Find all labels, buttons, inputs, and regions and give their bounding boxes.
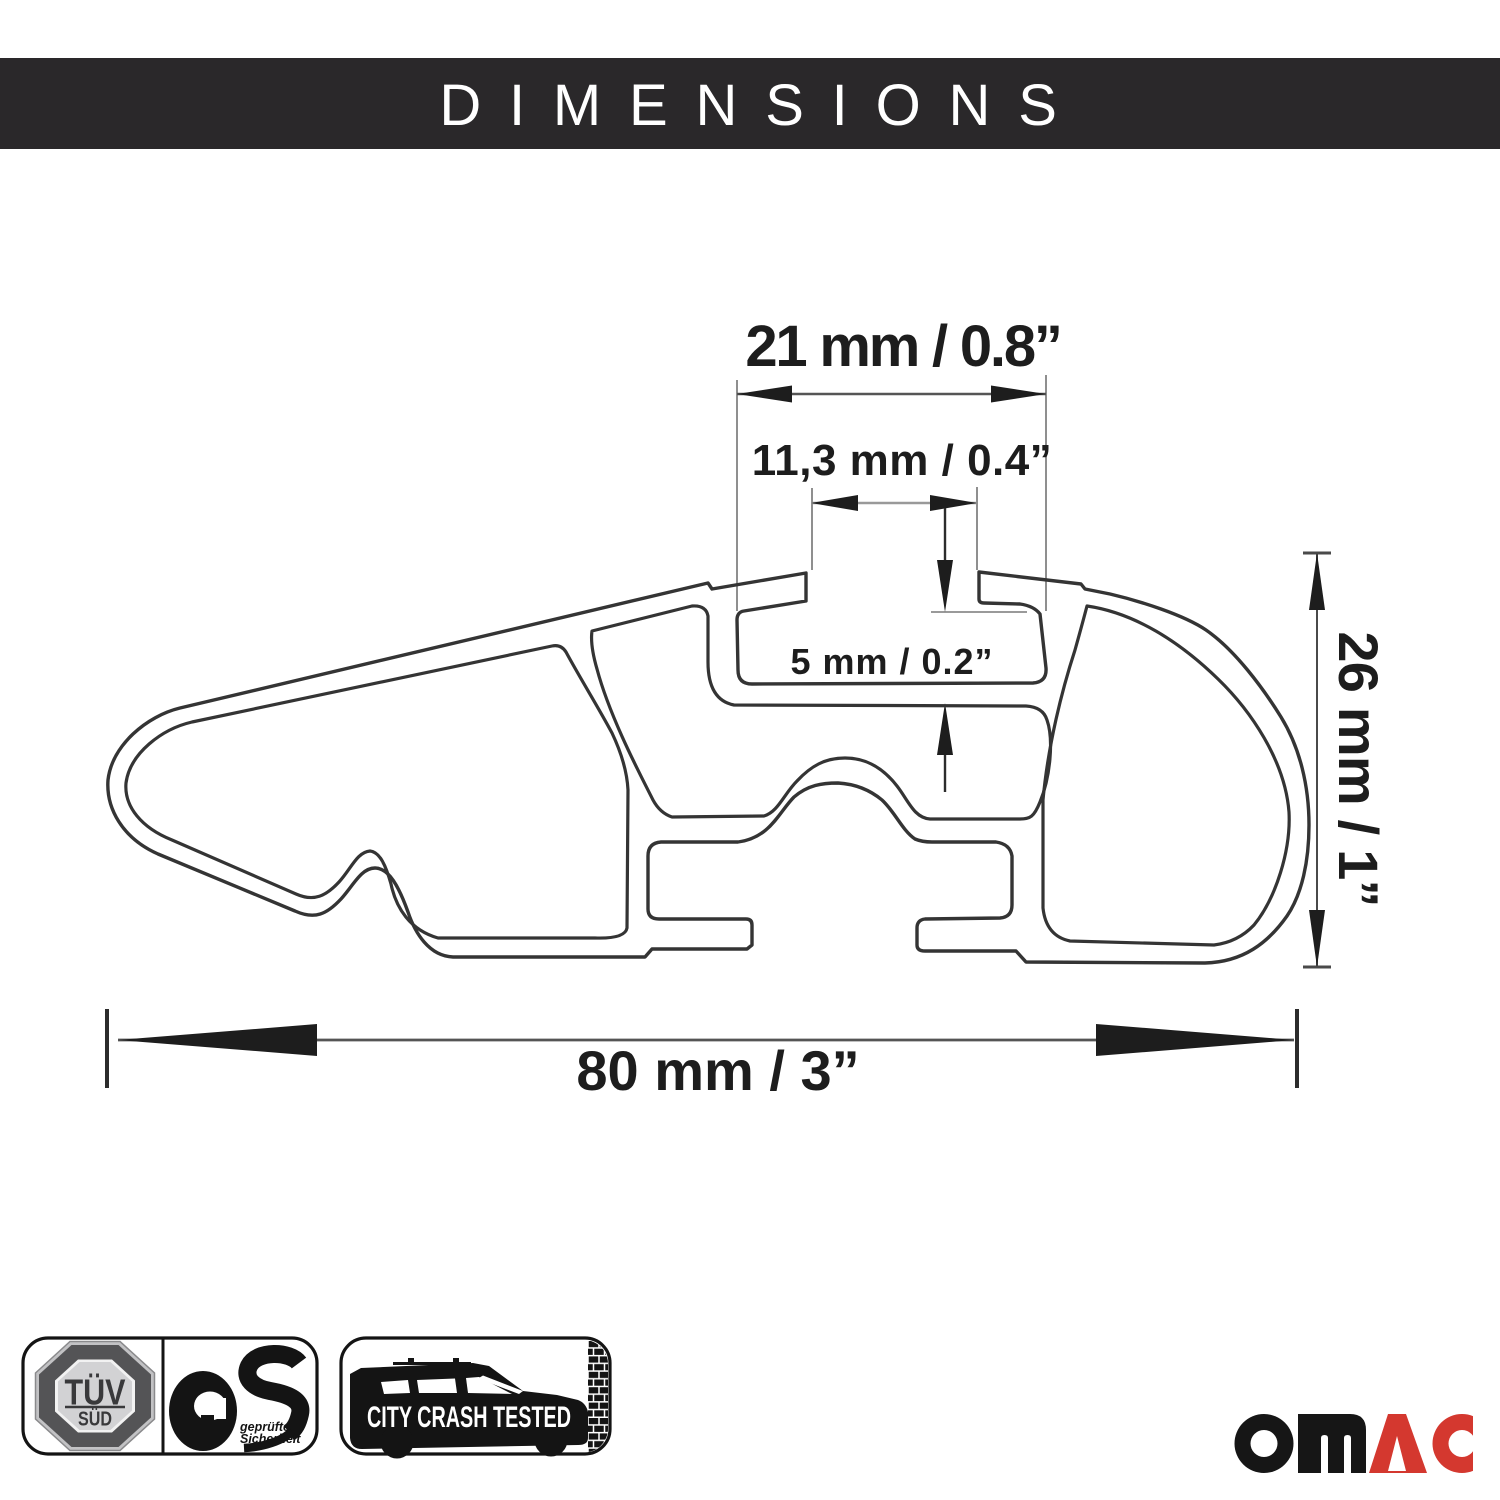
svg-text:SÜD: SÜD [78,1408,112,1431]
svg-text:5 mm / 0.2”: 5 mm / 0.2” [790,641,993,682]
svg-text:80 mm / 3”: 80 mm / 3” [576,1039,859,1102]
svg-text:Sicherheit: Sicherheit [240,1432,301,1446]
svg-text:11,3 mm / 0.4”: 11,3 mm / 0.4” [752,436,1053,485]
svg-text:DIMENSIONS: DIMENSIONS [439,73,1084,138]
svg-text:21 mm / 0.8”: 21 mm / 0.8” [745,314,1060,379]
svg-text:26 mm / 1”: 26 mm / 1” [1327,631,1390,906]
svg-text:CITY CRASH TESTED: CITY CRASH TESTED [367,1401,571,1434]
